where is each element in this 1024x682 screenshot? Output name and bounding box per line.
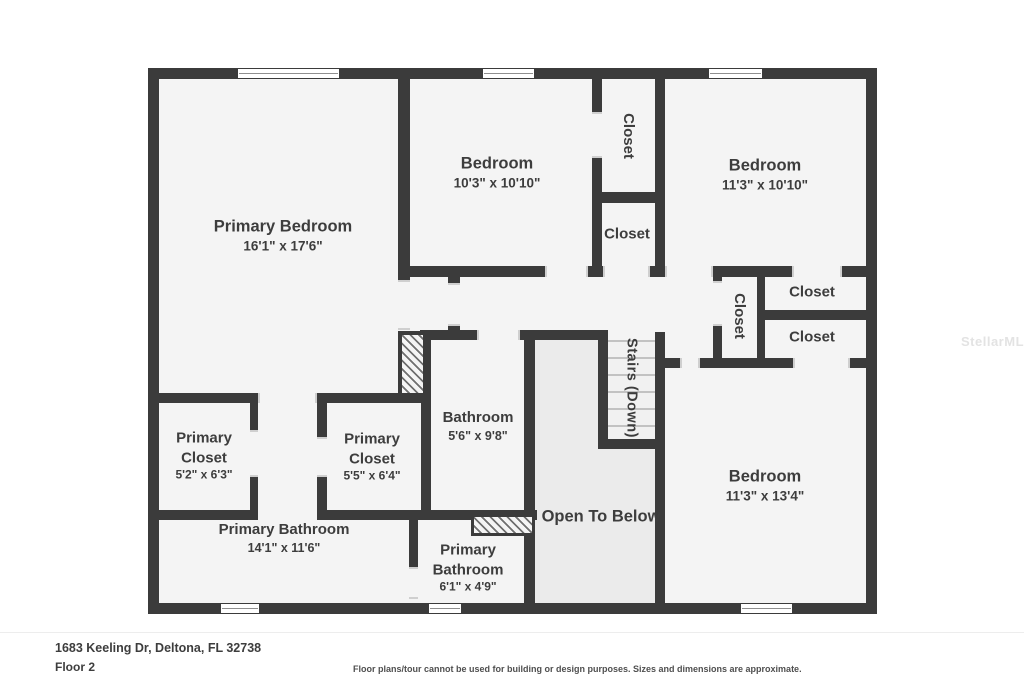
wall <box>842 266 866 277</box>
room-dims: 6'1" x 4'9" <box>433 580 504 596</box>
door-opening <box>592 156 602 158</box>
room-name: Closet <box>175 448 232 468</box>
disclaimer-text: Floor plans/tour cannot be used for buil… <box>353 664 802 674</box>
wall <box>598 332 608 449</box>
door-opening <box>317 475 327 477</box>
room-name: Bedroom <box>726 467 805 488</box>
room-name: Bathroom <box>433 560 504 580</box>
room-name: Bathroom <box>443 408 514 428</box>
room-name: Primary Bathroom <box>219 520 350 540</box>
stairs-label: Stairs (Down) <box>622 338 641 438</box>
wall <box>700 358 793 368</box>
room-dims: 11'3" x 10'10" <box>722 177 808 195</box>
wall <box>398 79 410 280</box>
room-label-bedroom-top-right: Bedroom 11'3" x 10'10" <box>722 156 808 195</box>
window <box>220 603 260 614</box>
wall <box>592 158 602 267</box>
room-name: Primary Bedroom <box>214 217 352 238</box>
door-opening <box>398 328 410 330</box>
door-opening <box>680 358 682 368</box>
room-label-bathroom: Bathroom 5'6" x 9'8" <box>443 408 514 444</box>
door-opening <box>713 324 722 326</box>
wall <box>655 332 665 614</box>
door-opening <box>792 266 794 277</box>
wall <box>866 68 877 614</box>
wall <box>148 68 159 614</box>
wall <box>250 393 258 430</box>
door-opening <box>409 597 418 599</box>
door-opening <box>713 281 722 283</box>
wall <box>757 310 866 320</box>
door-opening <box>518 330 520 340</box>
room-name: Primary <box>175 429 232 449</box>
room-label-bedroom-top-middle: Bedroom 10'3" x 10'10" <box>454 154 541 193</box>
door-opening <box>665 266 667 277</box>
room-label-closet-right-b: Closet <box>789 327 835 347</box>
room-dims: 10'3" x 10'10" <box>454 175 541 193</box>
hatched-fixture <box>398 331 427 397</box>
door-opening <box>648 266 650 277</box>
wall <box>398 266 545 277</box>
door-opening <box>315 393 317 403</box>
footer-divider <box>0 632 1024 633</box>
wall <box>650 266 665 277</box>
wall <box>713 326 722 358</box>
room-dims: 14'1" x 11'6" <box>219 540 350 556</box>
room-dims: 5'5" x 6'4" <box>343 469 400 485</box>
door-opening <box>711 266 713 277</box>
room-label-closet-right-a: Closet <box>789 282 835 302</box>
room-label-closet-tall: Closet <box>618 113 638 159</box>
wall <box>655 79 665 267</box>
hatched-fixture <box>471 514 535 536</box>
door-opening <box>793 358 795 368</box>
room-label-primary-closet-left: Primary Closet 5'2" x 6'3" <box>175 429 232 484</box>
room-label-bedroom-bottom-right: Bedroom 11'3" x 13'4" <box>726 467 805 506</box>
door-opening <box>317 437 327 439</box>
room-dims: 5'2" x 6'3" <box>175 468 232 484</box>
room-dims: 5'6" x 9'8" <box>443 428 514 444</box>
open-to-below-label: Open To Below <box>542 506 661 527</box>
door-opening <box>698 358 700 368</box>
wall <box>317 393 327 437</box>
door-opening <box>848 358 850 368</box>
wall <box>713 266 792 277</box>
window <box>237 68 340 79</box>
door-opening <box>840 266 842 277</box>
wall <box>588 266 603 277</box>
property-address: 1683 Keeling Dr, Deltona, FL 32738 <box>55 641 261 655</box>
door-opening <box>258 393 260 403</box>
room-label-closet-mid: Closet <box>604 224 650 244</box>
door-opening <box>448 324 460 326</box>
room-name: Bedroom <box>454 154 541 175</box>
window <box>428 603 462 614</box>
wall <box>850 358 866 368</box>
wall <box>592 79 602 112</box>
room-name: Bedroom <box>722 156 808 177</box>
door-opening <box>398 280 410 282</box>
door-opening <box>586 266 588 277</box>
door-opening <box>250 475 258 477</box>
wall <box>148 510 258 520</box>
room-label-primary-bathroom-large: Primary Bathroom 14'1" x 11'6" <box>219 520 350 556</box>
window <box>708 68 763 79</box>
door-opening <box>545 266 547 277</box>
room-dims: 11'3" x 13'4" <box>726 488 805 506</box>
room-name: Primary <box>343 430 400 450</box>
room-name: Primary <box>433 541 504 561</box>
room-label-primary-bedroom: Primary Bedroom 16'1" x 17'6" <box>214 217 352 256</box>
door-opening <box>448 283 460 285</box>
window <box>740 603 793 614</box>
wall <box>524 330 535 614</box>
door-opening <box>603 266 605 277</box>
floor-label: Floor 2 <box>55 660 95 674</box>
door-opening <box>250 430 258 432</box>
wall <box>148 393 258 403</box>
wall <box>409 510 418 567</box>
door-opening <box>592 112 602 114</box>
room-name: Closet <box>343 449 400 469</box>
room-name: Open To Below <box>542 506 661 527</box>
room-label-closet-hall: Closet <box>729 293 749 339</box>
floor-plan-page: Primary Bedroom 16'1" x 17'6" Bedroom 10… <box>0 0 1024 682</box>
window <box>482 68 535 79</box>
room-label-primary-closet-right: Primary Closet 5'5" x 6'4" <box>343 430 400 485</box>
room-dims: 16'1" x 17'6" <box>214 238 352 256</box>
door-opening <box>409 567 418 569</box>
door-opening <box>477 330 479 340</box>
stellar-mls-watermark: StellarMLS <box>961 334 1024 349</box>
room-label-primary-bathroom-small: Primary Bathroom 6'1" x 4'9" <box>433 541 504 596</box>
